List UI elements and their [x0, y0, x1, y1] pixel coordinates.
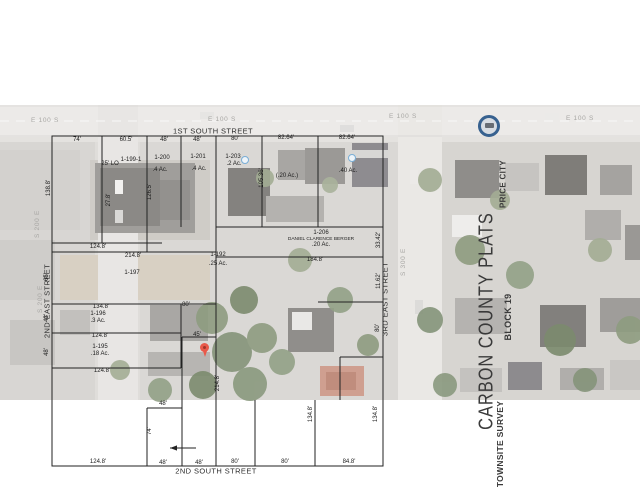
dimension-label: 74' — [73, 137, 81, 143]
dimension-label: 134.8' — [373, 406, 379, 422]
parcel-label: 1-201 — [190, 154, 205, 160]
aerial-street-label: E 100 S — [31, 118, 59, 125]
parcel-owner-label: DANIEL CLARENCE BERGER — [288, 237, 354, 242]
parcel-label: .25 Ac. — [209, 261, 227, 267]
dimension-label: 11.62' — [376, 273, 382, 289]
aerial-street-label: S 300 E — [401, 248, 408, 276]
parcel-label: 1-200 — [154, 155, 169, 161]
parcel-label: .4 Ac. — [152, 167, 167, 173]
survey-arrow-marker — [170, 440, 196, 456]
dimension-label: 65' — [44, 273, 50, 281]
dimension-label: 80' — [375, 324, 381, 332]
dimension-label: 124.8' — [90, 244, 106, 250]
business-logo-marker-icon[interactable] — [478, 115, 500, 137]
dimension-label: 84.8' — [343, 459, 356, 465]
street-name-label: 2ND SOUTH STREET — [175, 467, 256, 475]
aerial-street-label: S 200 E — [38, 285, 45, 313]
aerial-street-label: S 200 E — [35, 210, 42, 238]
parcel-label: 1-203 — [225, 154, 240, 160]
parcel-label: 1-199-1 — [121, 157, 142, 163]
block-number-label: BLOCK 19 — [503, 294, 513, 341]
dimension-label: 43' — [44, 314, 50, 322]
dimension-label: 60.5' — [120, 137, 133, 143]
pin-dot — [203, 346, 206, 349]
dimension-label: 80' — [231, 459, 239, 465]
parcel-label: .4 Ac. — [191, 166, 206, 172]
map-pin-icon[interactable] — [200, 343, 210, 357]
dimension-label: 126.5' — [147, 184, 153, 200]
dimension-label: 82.64' — [278, 135, 294, 141]
logo-glyph — [485, 123, 494, 128]
dimension-label: 124.8' — [90, 459, 106, 465]
survey-name-label: TOWNSITE SURVEY — [495, 401, 505, 487]
parcel-label: .2 Ac. — [226, 161, 241, 167]
parcel-label: .20 Ac. — [312, 242, 330, 248]
dimension-label: 27.8' — [106, 194, 112, 207]
dimension-label: 214.8' — [215, 375, 221, 391]
aerial-street-label: E 100 S — [566, 116, 594, 123]
parcel-label: (.20 Ac.) — [276, 173, 298, 179]
parcel-label: 1-206 — [313, 230, 328, 236]
dimension-label: 138.8' — [46, 180, 52, 196]
parcel-label: 1-197 — [124, 270, 139, 276]
parcel-label: 1-192 — [210, 252, 225, 258]
plat-book-title: CARBON COUNTY PLATS — [476, 212, 499, 430]
dimension-label: 33.42' — [376, 232, 382, 248]
dimension-label: 184.8' — [307, 257, 323, 263]
dimension-label: 48' — [195, 460, 203, 466]
dimension-label: 134.8' — [93, 304, 109, 310]
map-canvas[interactable]: 1ST SOUTH STREET2ND SOUTH STREET2ND EAST… — [0, 0, 640, 480]
plat-lines — [52, 136, 383, 466]
dimension-label: 48' — [44, 348, 50, 356]
poi-marker-icon[interactable] — [348, 154, 356, 162]
parcel-label: 25' LO — [101, 161, 119, 167]
street-name-label: 1ST SOUTH STREET — [173, 127, 253, 135]
parcel-label: .40 Ac. — [339, 168, 357, 174]
parcel-label: .18 Ac. — [91, 351, 109, 357]
parcel-label: 1-195 — [92, 344, 107, 350]
city-name-label: PRICE CITY — [499, 160, 508, 208]
dimension-label: 74' — [147, 427, 153, 435]
dimension-label: 48' — [160, 137, 168, 143]
street-name-label: 3RD EAST STREET — [381, 262, 389, 336]
parcel-label: .3 Ac. — [90, 318, 105, 324]
aerial-street-label: E 100 S — [208, 117, 236, 124]
dimension-label: 48' — [159, 401, 167, 407]
aerial-street-label: E 100 S — [389, 114, 417, 121]
dimension-label: 80' — [231, 136, 239, 142]
dimension-label: 214.8' — [125, 253, 141, 259]
dimension-label: 134.8' — [308, 406, 314, 422]
dimension-label: 48' — [159, 460, 167, 466]
dimension-label: 105.36' — [259, 168, 265, 188]
poi-marker-icon[interactable] — [241, 156, 249, 164]
dimension-label: 80' — [281, 459, 289, 465]
dimension-label: 124.8' — [94, 368, 110, 374]
pin-tip — [203, 351, 207, 357]
dimension-label: 48' — [193, 137, 201, 143]
dimension-label: 80' — [182, 302, 190, 308]
dimension-label: 124.8' — [92, 333, 108, 339]
dimension-label: 45' — [193, 332, 201, 338]
dimension-label: 82.64' — [339, 135, 355, 141]
parcel-label: 1-196 — [90, 311, 105, 317]
